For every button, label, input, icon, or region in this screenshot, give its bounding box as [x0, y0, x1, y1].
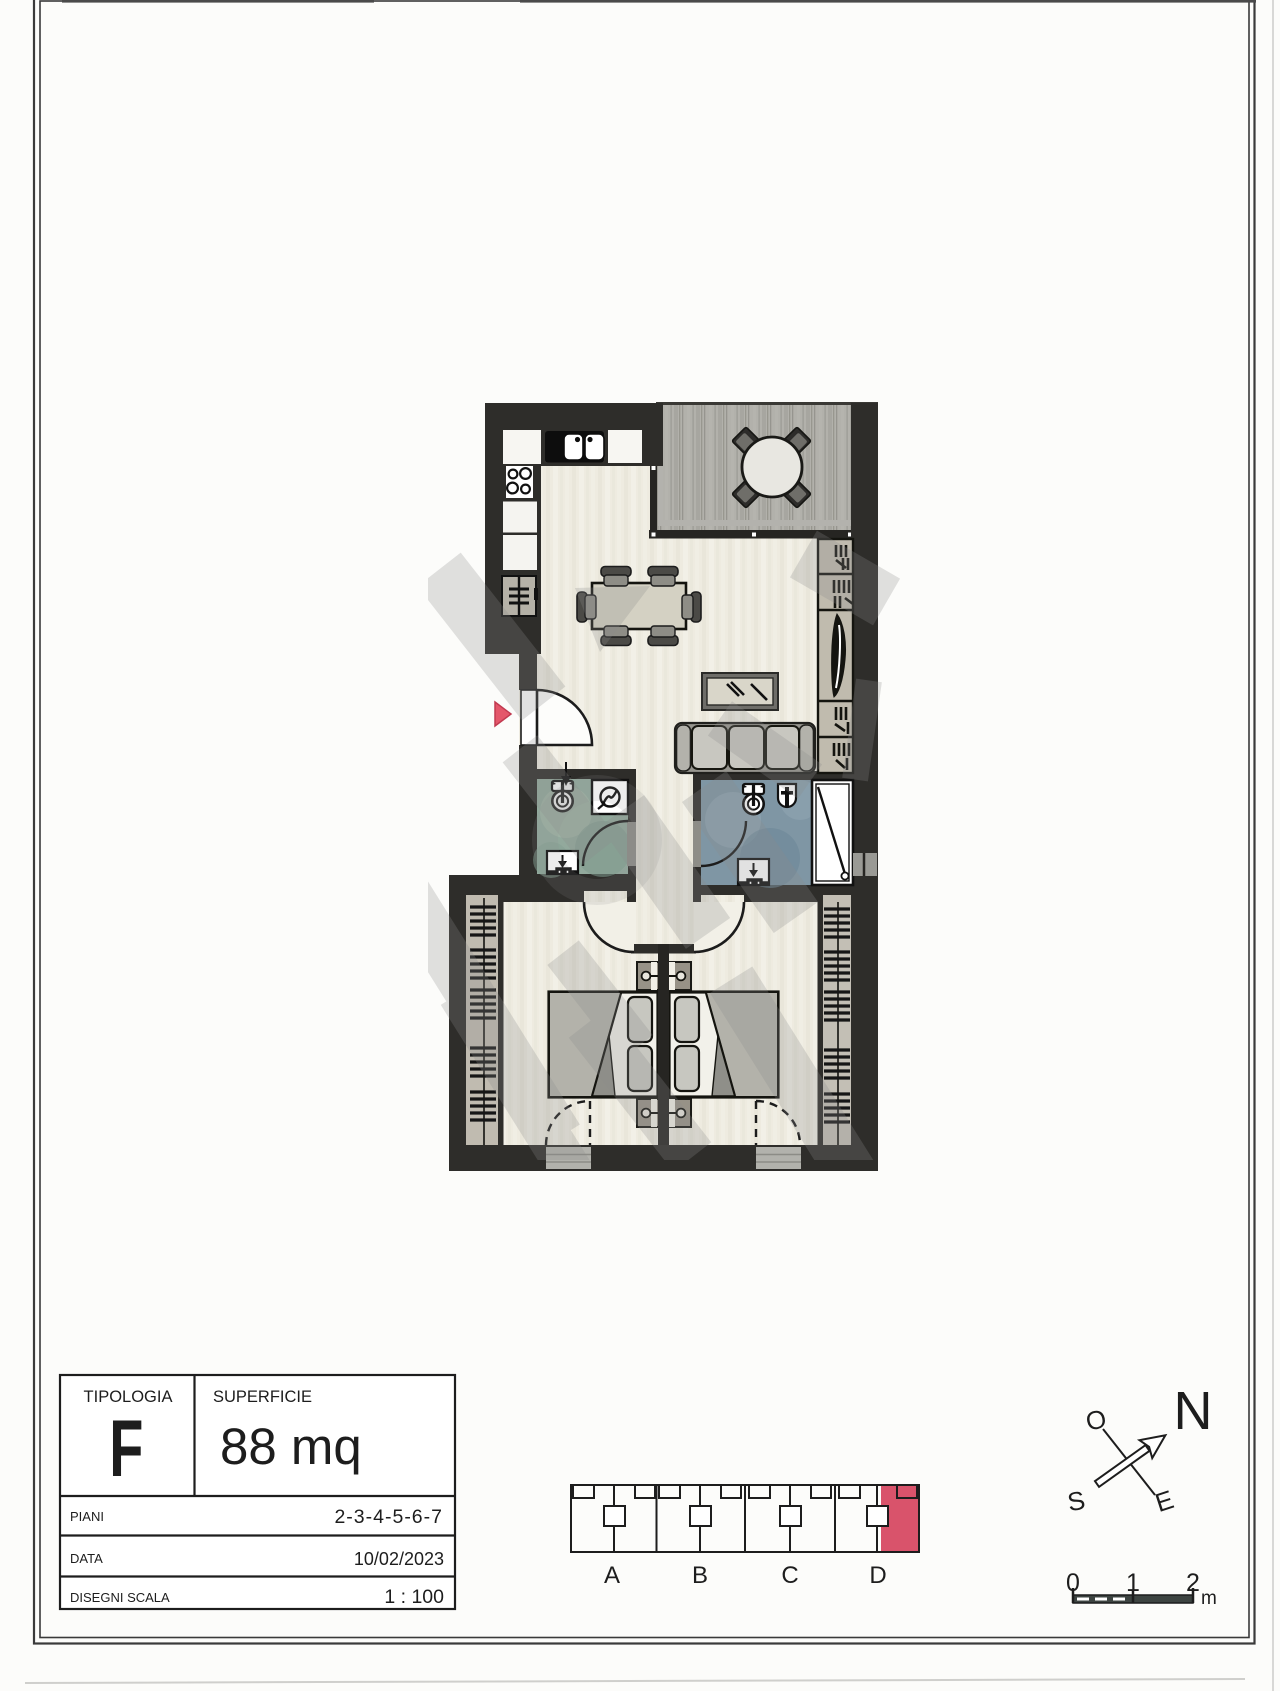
svg-text:D: D — [869, 1562, 886, 1589]
svg-text:2-3-4-5-6-7: 2-3-4-5-6-7 — [334, 1506, 443, 1528]
svg-text:DATA: DATA — [70, 1551, 103, 1566]
svg-text:C: C — [781, 1562, 798, 1589]
svg-text:DISEGNI SCALA: DISEGNI SCALA — [70, 1590, 170, 1605]
svg-text:88 mq: 88 mq — [220, 1418, 362, 1475]
svg-text:N: N — [1174, 1381, 1213, 1441]
svg-text:B: B — [692, 1562, 708, 1589]
svg-text:10/02/2023: 10/02/2023 — [354, 1549, 444, 1569]
svg-text:F: F — [109, 1403, 143, 1494]
svg-text:m: m — [1201, 1588, 1217, 1609]
svg-text:SUPERFICIE: SUPERFICIE — [213, 1388, 312, 1406]
svg-text:1 : 100: 1 : 100 — [384, 1586, 444, 1608]
svg-text:A: A — [604, 1562, 620, 1589]
svg-text:PIANI: PIANI — [70, 1509, 104, 1524]
